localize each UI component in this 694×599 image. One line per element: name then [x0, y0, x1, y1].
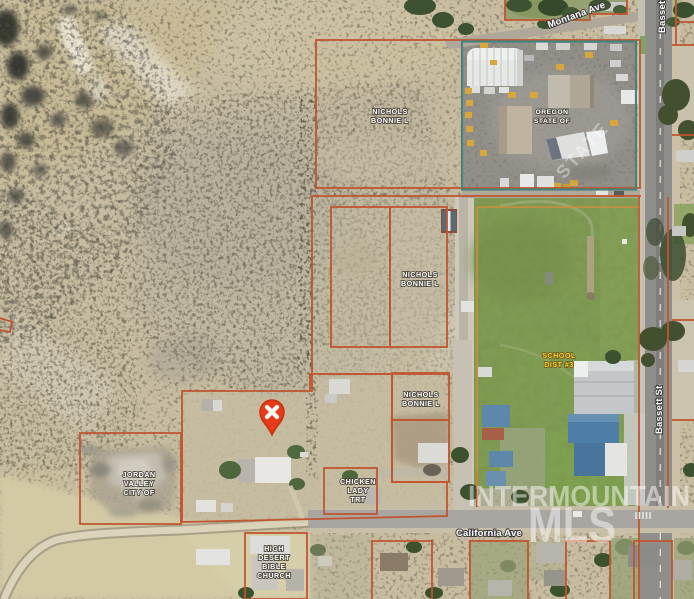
- svg-text:DIST #3: DIST #3: [544, 360, 574, 369]
- svg-text:NICHOLS: NICHOLS: [403, 390, 439, 399]
- svg-text:NICHOLS: NICHOLS: [402, 270, 438, 279]
- svg-text:DESERT: DESERT: [258, 553, 290, 562]
- svg-text:BONNIE L: BONNIE L: [401, 279, 439, 288]
- svg-text:OREGON: OREGON: [536, 109, 569, 116]
- svg-text:HIGH: HIGH: [264, 544, 284, 553]
- svg-text:BONNIE L: BONNIE L: [371, 116, 409, 125]
- svg-text:BONNIE L: BONNIE L: [402, 399, 440, 408]
- svg-text:MLS: MLS: [528, 497, 616, 553]
- svg-text:Bassett St: Bassett St: [654, 385, 665, 434]
- svg-text:BIBLE: BIBLE: [262, 562, 286, 571]
- svg-text:TRT: TRT: [350, 495, 365, 504]
- svg-text:NICHOLS: NICHOLS: [372, 107, 408, 116]
- svg-text:SCHOOL: SCHOOL: [542, 351, 576, 360]
- svg-text:STATE OF: STATE OF: [534, 118, 570, 125]
- svg-text:California Ave: California Ave: [456, 528, 522, 539]
- svg-text:LADY: LADY: [347, 486, 368, 495]
- svg-text:Bassett St: Bassett St: [657, 0, 668, 33]
- svg-text:CHURCH: CHURCH: [257, 571, 291, 580]
- svg-text:CHICKEN: CHICKEN: [340, 477, 376, 486]
